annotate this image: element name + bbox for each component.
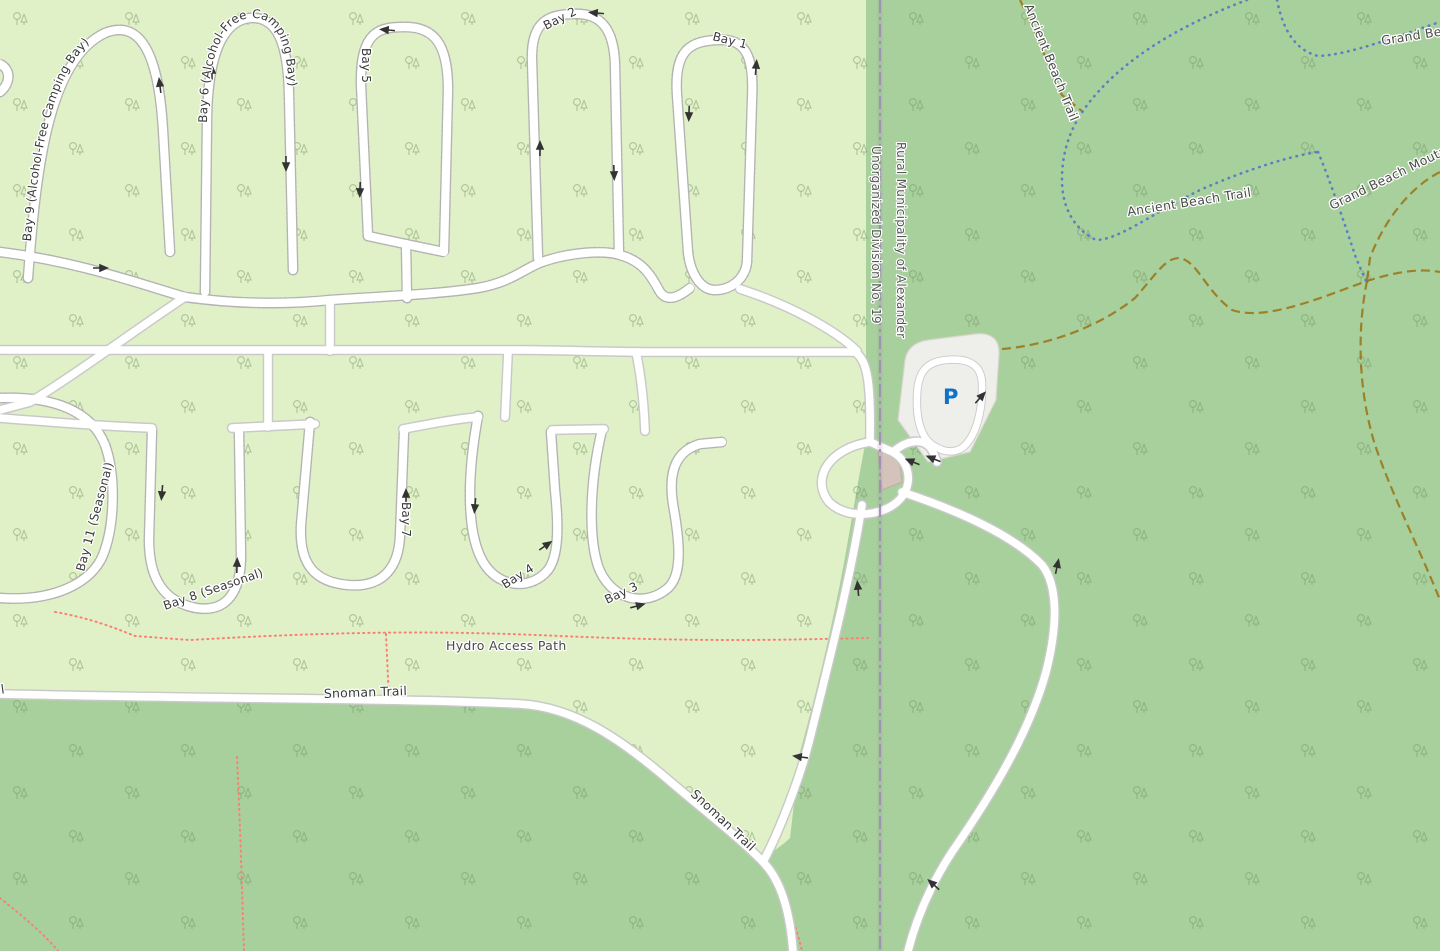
label-bay-7: Bay 7	[399, 502, 413, 537]
label-snoman-trail: Snoman Trail	[324, 683, 408, 701]
parking-icon: P	[943, 385, 958, 409]
label-boundary-right: Rural Municipality of Alexander	[894, 142, 908, 338]
label-boundary-left: Unorganized Division No. 19	[869, 146, 883, 324]
label-bay-5: Bay 5	[359, 48, 373, 83]
map-canvas[interactable]: Bay 9 (Alcohol-Free Camping Bay) Bay 6 (…	[0, 0, 1440, 951]
label-hydro-access-path: Hydro Access Path	[446, 638, 567, 653]
